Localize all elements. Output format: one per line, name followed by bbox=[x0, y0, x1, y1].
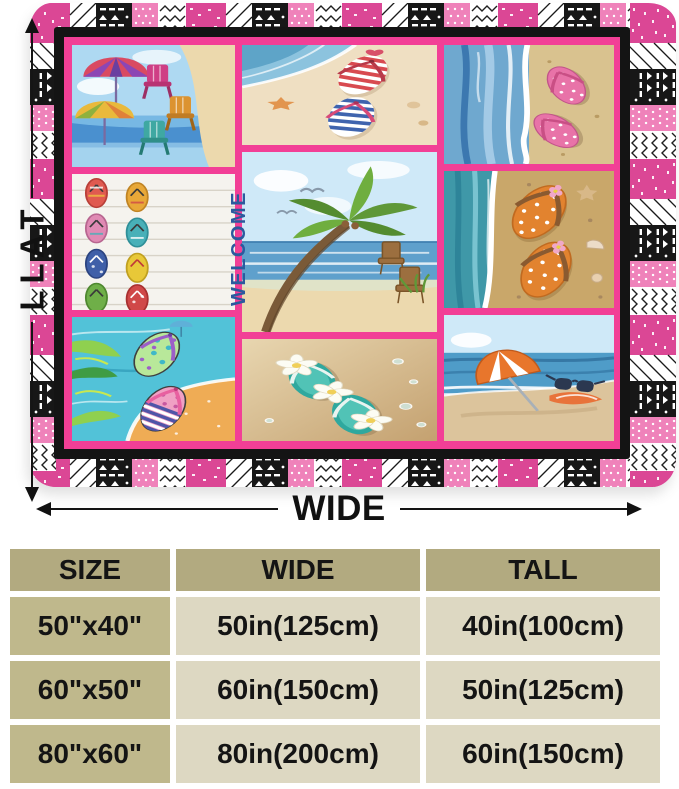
table-row-2-size: 80"x60" bbox=[10, 725, 170, 783]
table-row-1-size: 60"x50" bbox=[10, 661, 170, 719]
arrow-left-icon bbox=[36, 502, 51, 516]
arrow-line bbox=[31, 322, 33, 487]
panel-umbrella-sunglasses-shore bbox=[444, 315, 614, 441]
table-row-1-wide: 60in(150cm) bbox=[176, 661, 420, 719]
table-row-2-wide: 80in(200cm) bbox=[176, 725, 420, 783]
size-table-header-wide: WIDE bbox=[176, 549, 420, 591]
arrow-line bbox=[400, 508, 627, 510]
product-infographic: WELCOME TALL WIDE SIZE WIDE TALL 50"x40"… bbox=[0, 0, 679, 789]
wide-label: WIDE bbox=[278, 489, 399, 529]
size-table-header-tall: TALL bbox=[426, 549, 660, 591]
panel-orange-polka-flip-flops bbox=[444, 171, 614, 308]
wide-dimension-arrow: WIDE bbox=[36, 489, 642, 529]
welcome-sign-text: WELCOME bbox=[228, 191, 251, 306]
table-row-1-tall: 50in(125cm) bbox=[426, 661, 660, 719]
arrow-right-icon bbox=[627, 502, 642, 516]
table-row-0-wide: 50in(125cm) bbox=[176, 597, 420, 655]
welcome-sign: WELCOME bbox=[201, 179, 231, 307]
size-table: SIZE WIDE TALL 50"x40" 50in(125cm) 40in(… bbox=[10, 549, 660, 783]
panel-painted-flip-flops bbox=[72, 317, 235, 441]
panel-umbrellas-chairs bbox=[72, 45, 235, 167]
arrow-line bbox=[31, 33, 33, 198]
panel-teal-plumeria-flip-flops bbox=[242, 339, 437, 441]
table-row-0-size: 50"x40" bbox=[10, 597, 170, 655]
tall-label: TALL bbox=[20, 206, 44, 314]
table-row-2-tall: 60in(150cm) bbox=[426, 725, 660, 783]
panel-palm-tree-beach bbox=[242, 152, 437, 332]
tall-dimension-arrow: TALL bbox=[10, 18, 54, 502]
arrow-line bbox=[51, 508, 278, 510]
blanket-image: WELCOME bbox=[30, 3, 676, 487]
panel-pink-polka-flip-flops bbox=[444, 45, 614, 164]
panel-striped-flip-flops bbox=[242, 45, 437, 145]
size-table-header-size: SIZE bbox=[10, 549, 170, 591]
table-row-0-tall: 40in(100cm) bbox=[426, 597, 660, 655]
arrow-up-icon bbox=[25, 18, 39, 33]
